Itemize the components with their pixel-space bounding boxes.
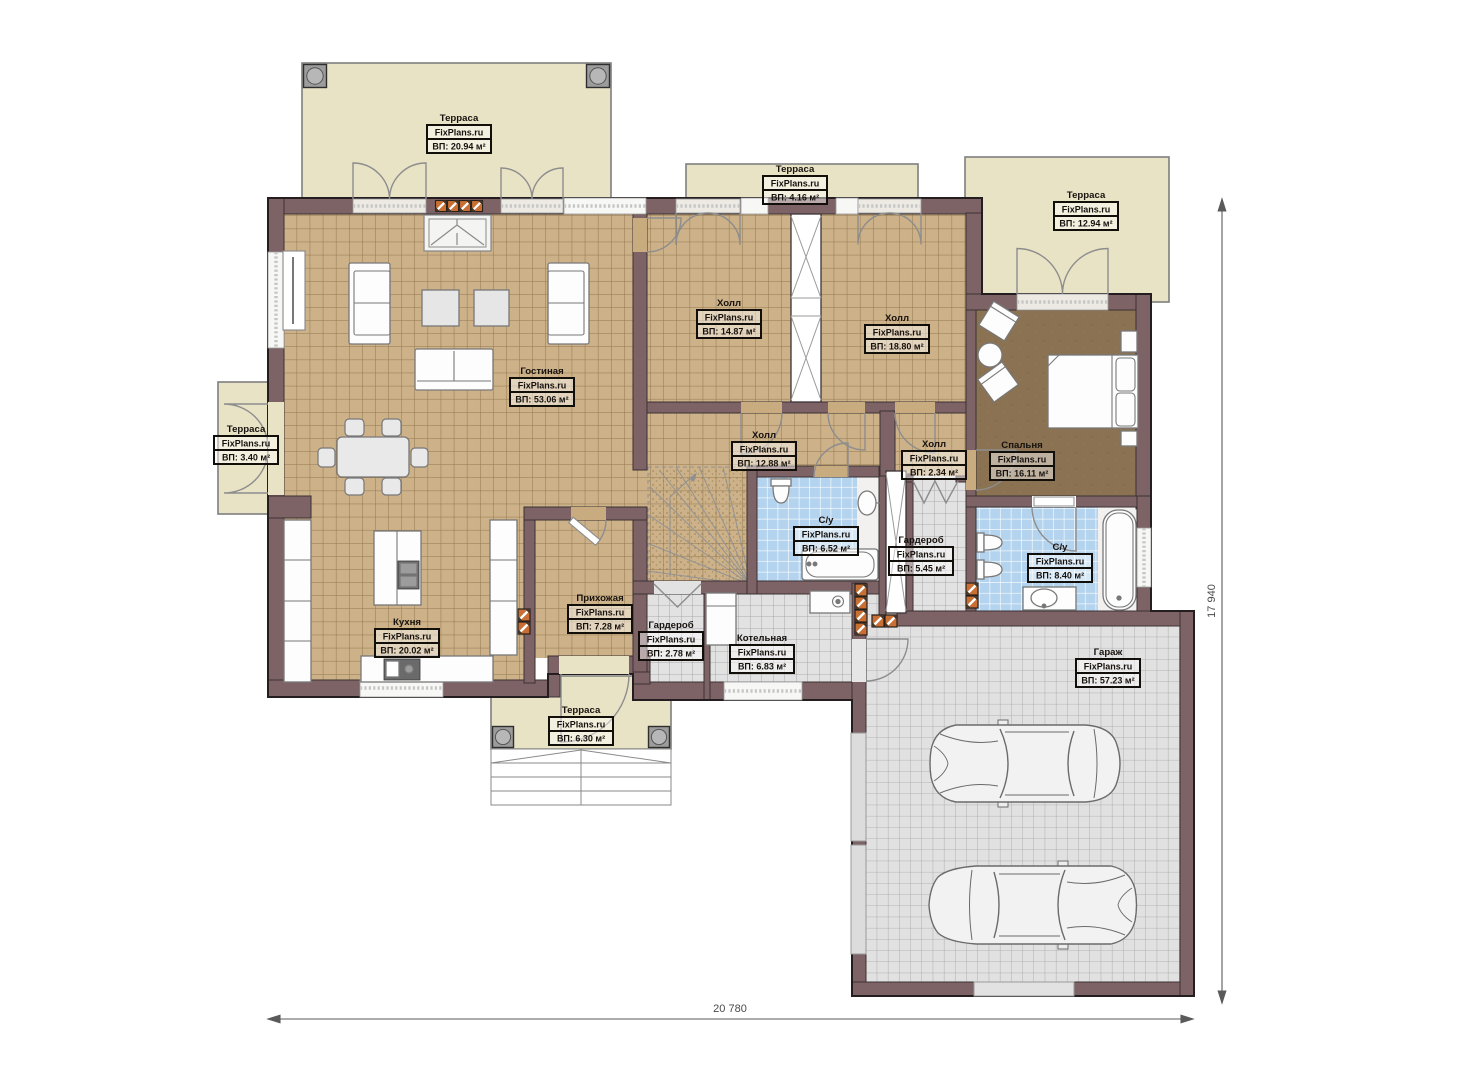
svg-text:Терраса: Терраса: [227, 424, 266, 435]
svg-text:ВП: 16.11 м²: ВП: 16.11 м²: [996, 469, 1049, 479]
svg-text:FixPlans.ru: FixPlans.ru: [518, 381, 567, 391]
svg-text:ВП: 6.83 м²: ВП: 6.83 м²: [738, 662, 786, 672]
svg-text:FixPlans.ru: FixPlans.ru: [222, 439, 271, 449]
svg-text:ВП: 18.80 м²: ВП: 18.80 м²: [870, 342, 923, 352]
svg-text:FixPlans.ru: FixPlans.ru: [435, 128, 484, 138]
svg-text:ВП: 6.52 м²: ВП: 6.52 м²: [802, 544, 850, 554]
svg-text:Холл: Холл: [717, 298, 741, 309]
svg-text:FixPlans.ru: FixPlans.ru: [897, 550, 946, 560]
svg-text:Гардероб: Гардероб: [898, 535, 943, 546]
svg-text:FixPlans.ru: FixPlans.ru: [740, 445, 789, 455]
svg-text:ВП: 20.94 м²: ВП: 20.94 м²: [432, 142, 485, 152]
svg-text:Холл: Холл: [752, 430, 776, 441]
svg-text:ВП: 4.16 м²: ВП: 4.16 м²: [771, 193, 819, 203]
svg-text:Холл: Холл: [885, 313, 909, 324]
svg-text:ВП: 12.94 м²: ВП: 12.94 м²: [1059, 219, 1112, 229]
svg-text:ВП: 5.45 м²: ВП: 5.45 м²: [897, 564, 945, 574]
svg-text:20 780: 20 780: [713, 1003, 747, 1015]
svg-text:ВП: 14.87 м²: ВП: 14.87 м²: [702, 327, 755, 337]
svg-text:ВП: 6.30 м²: ВП: 6.30 м²: [557, 734, 605, 744]
svg-text:ВП: 2.34 м²: ВП: 2.34 м²: [910, 468, 958, 478]
svg-text:FixPlans.ru: FixPlans.ru: [705, 313, 754, 323]
svg-text:Прихожая: Прихожая: [576, 593, 623, 604]
svg-text:FixPlans.ru: FixPlans.ru: [738, 648, 787, 658]
svg-text:С/у: С/у: [1053, 542, 1069, 553]
svg-text:FixPlans.ru: FixPlans.ru: [383, 632, 432, 642]
svg-text:17 940: 17 940: [1206, 584, 1218, 618]
svg-text:ВП: 57.23 м²: ВП: 57.23 м²: [1081, 676, 1134, 686]
svg-text:Гардероб: Гардероб: [648, 620, 693, 631]
svg-text:FixPlans.ru: FixPlans.ru: [647, 635, 696, 645]
svg-text:С/у: С/у: [819, 515, 835, 526]
svg-text:ВП: 2.78 м²: ВП: 2.78 м²: [647, 649, 695, 659]
svg-text:ВП: 12.88 м²: ВП: 12.88 м²: [737, 459, 790, 469]
svg-text:FixPlans.ru: FixPlans.ru: [998, 455, 1047, 465]
svg-text:Гараж: Гараж: [1094, 647, 1123, 658]
svg-text:FixPlans.ru: FixPlans.ru: [1036, 557, 1085, 567]
svg-text:FixPlans.ru: FixPlans.ru: [910, 454, 959, 464]
svg-text:Терраса: Терраса: [562, 705, 601, 716]
svg-text:FixPlans.ru: FixPlans.ru: [802, 530, 851, 540]
svg-text:FixPlans.ru: FixPlans.ru: [576, 608, 625, 618]
svg-text:FixPlans.ru: FixPlans.ru: [873, 328, 922, 338]
svg-text:FixPlans.ru: FixPlans.ru: [771, 179, 820, 189]
svg-text:FixPlans.ru: FixPlans.ru: [1084, 662, 1133, 672]
svg-text:Холл: Холл: [922, 439, 946, 450]
svg-text:ВП: 3.40 м²: ВП: 3.40 м²: [222, 453, 270, 463]
svg-text:ВП: 20.02 м²: ВП: 20.02 м²: [380, 646, 433, 656]
svg-text:Котельная: Котельная: [737, 633, 787, 644]
svg-text:Терраса: Терраса: [776, 164, 815, 175]
svg-text:ВП: 7.28 м²: ВП: 7.28 м²: [576, 622, 624, 632]
svg-text:ВП: 53.06 м²: ВП: 53.06 м²: [515, 395, 568, 405]
svg-text:Терраса: Терраса: [440, 113, 479, 124]
svg-text:FixPlans.ru: FixPlans.ru: [557, 720, 606, 730]
svg-text:FixPlans.ru: FixPlans.ru: [1062, 205, 1111, 215]
svg-text:Спальня: Спальня: [1001, 440, 1042, 451]
svg-text:Гостиная: Гостиная: [520, 366, 563, 377]
svg-text:ВП: 8.40 м²: ВП: 8.40 м²: [1036, 571, 1084, 581]
svg-text:Кухня: Кухня: [393, 617, 421, 628]
svg-text:Терраса: Терраса: [1067, 190, 1106, 201]
